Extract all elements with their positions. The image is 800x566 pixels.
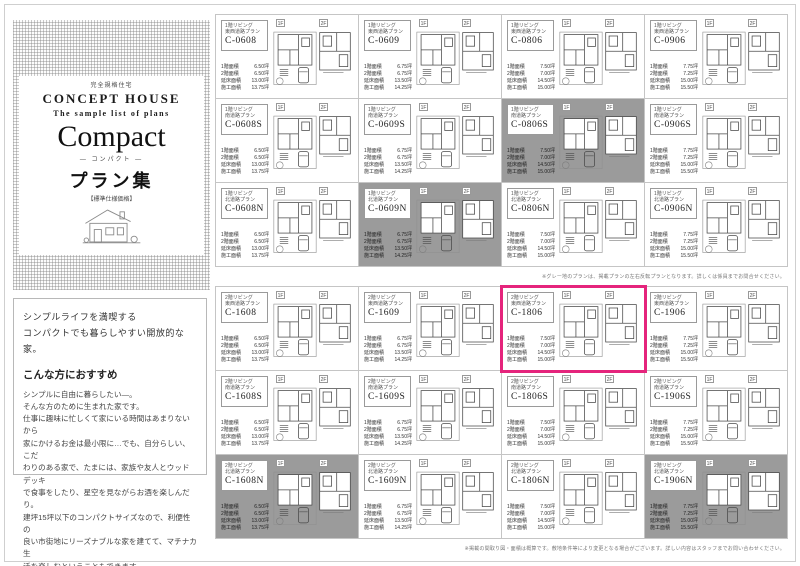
stat-value: 14.50坪 [537,162,555,169]
plan-stat-row: 施工面積13.75坪 [221,169,269,176]
plan-stat-row: 延床面積15.00坪 [650,246,698,253]
plan-label-box: 2階リビング 北道路プラン C-1906N [650,460,697,491]
plan-road-label: 東西道路プラン [225,301,264,307]
stat-label: 施工面積 [364,169,384,176]
floor-plan-2f-thumbnail [461,302,495,348]
stat-label: 2階面積 [221,239,239,246]
plan-stats: 1階面積6.75坪2階面積6.75坪延床面積13.50坪施工面積14.25坪 [364,504,412,532]
plan-road-label: 北道路プラン [225,469,264,475]
plan-stat-row: 延床面積14.50坪 [507,246,555,253]
stat-value: 13.75坪 [251,357,269,364]
plan-stat-row: 施工面積13.75坪 [221,85,269,92]
floor-1f-tag: 1F [276,103,285,111]
floor-plan-2f-thumbnail [747,470,781,516]
floor-2f-tag: 2F [748,375,757,383]
stat-label: 施工面積 [364,357,384,364]
stat-value: 15.00坪 [680,350,698,357]
stat-value: 6.50坪 [254,420,269,427]
plan-stats: 1階面積7.50坪2階面積7.00坪延床面積14.50坪施工面積15.00坪 [507,232,555,260]
plan-road-label: 南道路プラン [225,113,264,119]
stat-label: 1階面積 [221,420,239,427]
stat-value: 6.75坪 [397,343,412,350]
stat-label: 1階面積 [221,504,239,511]
stat-label: 1階面積 [364,148,382,155]
plan-card[interactable]: 2階リビング 北道路プラン C-1806N 1階面積7.50坪2階面積7.00坪… [502,455,645,539]
stat-value: 13.50坪 [394,78,412,85]
floor-plan-2f-thumbnail [461,198,495,244]
plan-code: C-1806N [511,476,550,487]
stat-value: 7.00坪 [540,239,555,246]
floor-plan-2f-thumbnail [747,114,781,160]
stat-label: 施工面積 [650,441,670,448]
floor-plan-2f-thumbnail [461,386,495,432]
floor-1f-tag: 1F [276,375,285,383]
plan-stat-row: 延床面積15.00坪 [650,162,698,169]
stat-label: 1階面積 [221,148,239,155]
stat-value: 6.75坪 [397,148,412,155]
plan-stat-row: 1階面積6.75坪 [364,420,412,427]
stat-value: 15.00坪 [537,525,555,532]
floor-1f-tag: 1F [419,291,428,299]
plan-card[interactable]: 2階リビング 南道路プラン C-1806S 1階面積7.50坪2階面積7.00坪… [502,371,645,455]
stat-label: 施工面積 [507,441,527,448]
plan-stat-row: 2階面積6.75坪 [364,239,412,246]
plan-stat-row: 1階面積7.75坪 [650,64,698,71]
stat-value: 6.75坪 [397,336,412,343]
plan-stats: 1階面積7.50坪2階面積7.00坪延床面積14.50坪施工面積15.00坪 [507,64,555,92]
floor-2f-tag: 2F [319,19,328,27]
stat-value: 6.50坪 [254,71,269,78]
plan-label-box: 1階リビング 北道路プラン C-0609N [364,188,411,219]
stat-value: 7.25坪 [683,155,698,162]
description-box: シンプルライフを満喫する コンパクトでも暮らしやすい開放的な家。 こんな方におす… [13,298,207,475]
stat-value: 7.50坪 [540,504,555,511]
plan-stat-row: 施工面積15.50坪 [650,169,698,176]
plan-road-label: 東西道路プラン [511,29,550,35]
plan-label-box: 2階リビング 東西道路プラン C-1906 [650,292,697,323]
plan-stat-row: 1階面積7.50坪 [507,64,555,71]
plan-code: C-1806S [511,392,550,403]
stat-value: 14.50坪 [537,518,555,525]
plan-stat-row: 1階面積7.50坪 [507,420,555,427]
plan-stat-row: 施工面積14.25坪 [364,357,412,364]
stat-value: 7.00坪 [540,71,555,78]
floor-1f-tag: 1F [705,291,714,299]
plan-card[interactable]: 1階リビング 北道路プラン C-0806N 1階面積7.50坪2階面積7.00坪… [502,183,645,267]
floor-plan-2f-thumbnail [461,30,495,76]
stat-value: 13.75坪 [251,525,269,532]
stat-label: 施工面積 [221,85,241,92]
stat-label: 2階面積 [507,155,525,162]
plan-stat-row: 1階面積7.75坪 [650,420,698,427]
plan-road-label: 北道路プラン [654,469,693,475]
plan-road-label: 北道路プラン [368,197,407,203]
plan-stat-row: 延床面積15.00坪 [650,78,698,85]
plan-stat-row: 2階面積7.00坪 [507,239,555,246]
plan-code: C-1609S [368,392,407,403]
stat-value: 7.75坪 [683,420,698,427]
plan-stat-row: 2階面積7.25坪 [650,511,698,518]
plan-stat-row: 延床面積14.50坪 [507,350,555,357]
floor-2f-tag: 2F [605,459,614,467]
stat-value: 13.50坪 [394,350,412,357]
stat-label: 延床面積 [221,518,241,525]
plan-label-box: 2階リビング 北道路プラン C-1806N [507,460,554,491]
plan-stat-row: 施工面積15.00坪 [507,85,555,92]
plan-stat-row: 2階面積6.75坪 [364,343,412,350]
plan-stat-row: 2階面積6.75坪 [364,155,412,162]
floor-2f-tag: 2F [319,187,328,195]
plan-card[interactable]: 1階リビング 南道路プラン C-0806S 1階面積7.50坪2階面積7.00坪… [502,99,645,183]
floor-1f-tag: 1F [562,19,571,27]
stat-value: 15.00坪 [680,434,698,441]
floor-2f-tag: 2F [605,103,614,111]
stat-value: 7.25坪 [683,71,698,78]
plan-stats: 1階面積7.75坪2階面積7.25坪延床面積15.00坪施工面積15.50坪 [650,232,698,260]
plan-stat-row: 施工面積15.00坪 [507,253,555,260]
plan-stat-row: 1階面積6.50坪 [221,232,269,239]
plan-stats: 1階面積6.50坪2階面積6.50坪延床面積13.00坪施工面積13.75坪 [221,504,269,532]
floor-plan-1f-thumbnail [416,113,460,175]
stat-value: 14.25坪 [394,357,412,364]
plan-stat-row: 施工面積15.50坪 [650,85,698,92]
plan-label-box: 1階リビング 北道路プラン C-0806N [507,188,554,219]
plan-stat-row: 延床面積14.50坪 [507,162,555,169]
stat-value: 15.50坪 [680,85,698,92]
stat-value: 15.00坪 [680,518,698,525]
plan-label-box: 1階リビング 東西道路プラン C-0806 [507,20,554,51]
plan-stat-row: 2階面積7.25坪 [650,71,698,78]
plan-stat-row: 2階面積7.00坪 [507,155,555,162]
stat-value: 7.75坪 [683,64,698,71]
stat-label: 延床面積 [650,434,670,441]
plan-road-label: 南道路プラン [654,385,693,391]
stat-value: 13.00坪 [251,518,269,525]
plan-card[interactable]: 2階リビング 北道路プラン C-1609N 1階面積6.75坪2階面積6.75坪… [359,455,502,539]
plan-stat-row: 1階面積6.75坪 [364,336,412,343]
floor-2f-tag: 2F [748,19,757,27]
plan-stat-row: 2階面積7.25坪 [650,427,698,434]
plan-card[interactable]: 1階リビング 南道路プラン C-0608S 1階面積6.50坪2階面積6.50坪… [216,99,359,183]
plan-stats: 1階面積6.75坪2階面積6.75坪延床面積13.50坪施工面積14.25坪 [364,232,412,260]
stat-label: 延床面積 [221,434,241,441]
plan-grid-top: 1階リビング 東西道路プラン C-0608 1階面積6.50坪2階面積6.50坪… [215,14,788,267]
floor-plan-2f-thumbnail [747,302,781,348]
plan-card[interactable]: 2階リビング 東西道路プラン C-1906 1階面積7.75坪2階面積7.25坪… [645,287,788,371]
plan-stat-row: 延床面積13.00坪 [221,434,269,441]
plan-card[interactable]: 2階リビング 南道路プラン C-1608S 1階面積6.50坪2階面積6.50坪… [216,371,359,455]
plan-label-box: 2階リビング 南道路プラン C-1806S [507,376,554,407]
floor-2f-tag: 2F [319,103,328,111]
stat-label: 2階面積 [364,155,382,162]
floor-plan-2f-thumbnail [604,198,638,244]
stat-label: 1階面積 [507,420,525,427]
plan-code: C-1906 [654,308,693,319]
stat-value: 6.75坪 [397,64,412,71]
stat-value: 14.25坪 [394,169,412,176]
stat-label: 1階面積 [364,232,382,239]
plan-stat-row: 施工面積15.50坪 [650,357,698,364]
stat-value: 14.25坪 [394,85,412,92]
stat-value: 6.50坪 [254,64,269,71]
floor-1f-tag: 1F [705,103,714,111]
plan-stat-row: 1階面積6.75坪 [364,504,412,511]
plan-code: C-1609N [368,476,407,487]
stat-label: 2階面積 [364,427,382,434]
floor-2f-tag: 2F [462,459,471,467]
plan-stat-row: 延床面積13.50坪 [364,78,412,85]
stat-value: 7.00坪 [540,511,555,518]
floor-2f-tag: 2F [462,19,471,27]
plan-stat-row: 延床面積15.00坪 [650,518,698,525]
brand-title: CONCEPT HOUSE [19,91,204,107]
plan-stat-row: 施工面積14.25坪 [364,169,412,176]
floor-plan-1f-thumbnail [273,301,317,363]
plan-road-label: 東西道路プラン [511,301,550,307]
plan-road-label: 南道路プラン [225,385,264,391]
plan-stats: 1階面積6.75坪2階面積6.75坪延床面積13.50坪施工面積14.25坪 [364,336,412,364]
plan-card[interactable]: 1階リビング 北道路プラン C-0906N 1階面積7.75坪2階面積7.25坪… [645,183,788,267]
stat-value: 6.75坪 [397,420,412,427]
plan-stat-row: 2階面積7.25坪 [650,343,698,350]
plan-stat-row: 1階面積7.50坪 [507,504,555,511]
plan-road-label: 南道路プラン [368,385,407,391]
plan-label-box: 1階リビング 東西道路プラン C-0609 [364,20,411,51]
plan-stat-row: 延床面積13.50坪 [364,162,412,169]
stat-value: 13.50坪 [394,434,412,441]
plan-label-box: 1階リビング 南道路プラン C-0609S [364,104,411,135]
stat-value: 14.25坪 [394,525,412,532]
stat-label: 1階面積 [507,232,525,239]
stat-label: 2階面積 [507,427,525,434]
plan-card[interactable]: 1階リビング 南道路プラン C-0906S 1階面積7.75坪2階面積7.25坪… [645,99,788,183]
stat-label: 1階面積 [507,504,525,511]
plan-card[interactable]: 2階リビング 東西道路プラン C-1609 1階面積6.75坪2階面積6.75坪… [359,287,502,371]
plan-label-box: 1階リビング 東西道路プラン C-0608 [221,20,268,51]
stat-value: 13.75坪 [251,85,269,92]
plan-card[interactable]: 1階リビング 東西道路プラン C-0609 1階面積6.75坪2階面積6.75坪… [359,15,502,99]
plan-card[interactable]: 2階リビング 東西道路プラン C-1608 1階面積6.50坪2階面積6.50坪… [216,287,359,371]
plan-label-box: 1階リビング 北道路プラン C-0608N [221,188,268,219]
brand-subtitle: The sample list of plans [19,109,204,118]
floor-plan-2f-thumbnail [604,386,638,432]
stat-value: 13.00坪 [251,434,269,441]
plan-label-box: 2階リビング 東西道路プラン C-1609 [364,292,411,323]
stat-value: 6.50坪 [254,336,269,343]
floor-plan-2f-thumbnail [747,30,781,76]
stat-label: 2階面積 [221,343,239,350]
stat-label: 2階面積 [650,239,668,246]
plan-road-label: 北道路プラン [225,197,264,203]
plan-stat-row: 1階面積7.50坪 [507,232,555,239]
stat-label: 施工面積 [650,253,670,260]
plan-stat-row: 2階面積6.75坪 [364,511,412,518]
plan-stat-row: 1階面積7.75坪 [650,232,698,239]
stat-value: 14.25坪 [394,441,412,448]
title-block: 完全規格住宅 CONCEPT HOUSE The sample list of … [13,20,210,290]
floor-plan-1f-thumbnail [702,469,746,531]
floor-1f-tag: 1F [419,103,428,111]
stat-label: 1階面積 [507,148,525,155]
stat-value: 7.25坪 [683,343,698,350]
plan-stat-row: 1階面積7.50坪 [507,148,555,155]
plan-stat-row: 延床面積13.00坪 [221,246,269,253]
plan-stat-row: 2階面積7.25坪 [650,239,698,246]
stat-label: 1階面積 [650,232,668,239]
stat-value: 15.00坪 [537,169,555,176]
recommend-heading: こんな方におすすめ [23,367,197,382]
floor-2f-tag: 2F [748,187,757,195]
stat-value: 15.50坪 [680,441,698,448]
plan-stat-row: 1階面積6.50坪 [221,504,269,511]
plan-code: C-0608N [225,204,264,215]
floor-2f-tag: 2F [462,375,471,383]
plan-label-box: 2階リビング 北道路プラン C-1608N [221,460,268,491]
plan-stat-row: 施工面積15.00坪 [507,169,555,176]
floor-2f-tag: 2F [748,459,757,467]
plan-card[interactable]: 1階リビング 北道路プラン C-0609N 1階面積6.75坪2階面積6.75坪… [359,183,502,267]
plan-stat-row: 延床面積13.50坪 [364,518,412,525]
plan-card[interactable]: 1階リビング 東西道路プラン C-0806 1階面積7.50坪2階面積7.00坪… [502,15,645,99]
stat-value: 13.00坪 [251,246,269,253]
plan-card[interactable]: 1階リビング 南道路プラン C-0609S 1階面積6.75坪2階面積6.75坪… [359,99,502,183]
stat-label: 2階面積 [221,155,239,162]
plan-stat-row: 2階面積6.50坪 [221,239,269,246]
plan-stat-row: 1階面積7.75坪 [650,504,698,511]
plan-code: C-1609 [368,308,407,319]
house-illustration-icon [19,206,204,251]
floor-plan-2f-thumbnail [461,470,495,516]
stat-value: 15.00坪 [680,78,698,85]
floor-plan-2f-thumbnail [604,30,638,76]
floor-plan-1f-thumbnail [559,301,603,363]
plan-road-label: 南道路プラン [368,113,407,119]
stat-value: 6.75坪 [397,427,412,434]
plan-stat-row: 2階面積7.00坪 [507,71,555,78]
stat-value: 13.50坪 [394,162,412,169]
stat-value: 14.50坪 [537,246,555,253]
floor-2f-tag: 2F [319,459,328,467]
plan-road-label: 南道路プラン [511,113,550,119]
plan-card[interactable]: 1階リビング 北道路プラン C-0608N 1階面積6.50坪2階面積6.50坪… [216,183,359,267]
plan-stats: 1階面積7.50坪2階面積7.00坪延床面積14.50坪施工面積15.00坪 [507,504,555,532]
plan-stat-row: 施工面積15.50坪 [650,525,698,532]
plan-stat-row: 延床面積14.50坪 [507,518,555,525]
stat-label: 延床面積 [650,518,670,525]
plan-code: C-1906S [654,392,693,403]
stat-value: 7.50坪 [540,64,555,71]
stat-value: 7.50坪 [540,420,555,427]
plan-code: C-1806 [511,308,550,319]
floor-plan-1f-thumbnail [702,385,746,447]
plan-grid: 1階リビング 東西道路プラン C-0608 1階面積6.50坪2階面積6.50坪… [215,14,788,558]
plan-stats: 1階面積6.75坪2階面積6.75坪延床面積13.50坪施工面積14.25坪 [364,64,412,92]
stat-label: 1階面積 [507,336,525,343]
stat-label: 施工面積 [221,525,241,532]
plan-road-label: 北道路プラン [368,469,407,475]
plan-stat-row: 延床面積15.00坪 [650,434,698,441]
plan-card[interactable]: 1階リビング 東西道路プラン C-0608 1階面積6.50坪2階面積6.50坪… [216,15,359,99]
floor-1f-tag: 1F [419,459,428,467]
stat-label: 延床面積 [221,246,241,253]
plan-card[interactable]: 2階リビング 東西道路プラン C-1806 1階面積7.50坪2階面積7.00坪… [502,287,645,371]
plan-label-box: 1階リビング 北道路プラン C-0906N [650,188,697,219]
plan-stat-row: 2階面積7.00坪 [507,427,555,434]
stat-label: 延床面積 [221,162,241,169]
stat-label: 延床面積 [650,162,670,169]
stat-label: 施工面積 [507,253,527,260]
plan-road-label: 東西道路プラン [368,29,407,35]
plan-card[interactable]: 2階リビング 北道路プラン C-1608N 1階面積6.50坪2階面積6.50坪… [216,455,359,539]
floor-1f-tag: 1F [705,459,714,467]
plan-label-box: 2階リビング 南道路プラン C-1609S [364,376,411,407]
plan-stat-row: 2階面積6.50坪 [221,155,269,162]
plan-card[interactable]: 1階リビング 東西道路プラン C-0906 1階面積7.75坪2階面積7.25坪… [645,15,788,99]
stat-label: 延床面積 [221,350,241,357]
floor-plan-1f-thumbnail [416,385,460,447]
plan-code: C-0806 [511,36,550,47]
floor-plan-1f-thumbnail [559,113,603,175]
floor-2f-tag: 2F [462,291,471,299]
plan-stat-row: 施工面積14.25坪 [364,525,412,532]
plan-road-label: 南道路プラン [511,385,550,391]
stat-value: 13.00坪 [251,350,269,357]
plan-stat-row: 延床面積13.00坪 [221,78,269,85]
stat-label: 延床面積 [650,78,670,85]
stat-label: 2階面積 [364,511,382,518]
stat-value: 13.00坪 [251,162,269,169]
stat-value: 7.50坪 [540,232,555,239]
stat-label: 2階面積 [221,511,239,518]
stat-value: 7.50坪 [540,148,555,155]
stat-label: 1階面積 [364,504,382,511]
stat-label: 延床面積 [364,246,384,253]
stat-value: 14.25坪 [394,253,412,260]
plan-stat-row: 1階面積6.50坪 [221,420,269,427]
plan-card[interactable]: 2階リビング 南道路プラン C-1906S 1階面積7.75坪2階面積7.25坪… [645,371,788,455]
stat-label: 施工面積 [507,85,527,92]
plan-stat-row: 延床面積13.50坪 [364,434,412,441]
stat-value: 6.75坪 [397,232,412,239]
plan-stat-row: 2階面積6.75坪 [364,71,412,78]
stat-label: 延床面積 [507,246,527,253]
plan-card[interactable]: 2階リビング 南道路プラン C-1609S 1階面積6.75坪2階面積6.75坪… [359,371,502,455]
floor-plan-2f-thumbnail [318,302,352,348]
plan-code: C-0608 [225,36,264,47]
floor-plan-1f-thumbnail [273,197,317,259]
stat-value: 6.75坪 [397,504,412,511]
plan-stat-row: 1階面積6.75坪 [364,64,412,71]
stat-label: 2階面積 [650,511,668,518]
stat-label: 2階面積 [507,511,525,518]
plan-stat-row: 施工面積13.75坪 [221,441,269,448]
floor-1f-tag: 1F [562,291,571,299]
floor-plan-2f-thumbnail [461,114,495,160]
stat-label: 延床面積 [507,78,527,85]
plan-card[interactable]: 2階リビング 北道路プラン C-1906N 1階面積7.75坪2階面積7.25坪… [645,455,788,539]
floor-2f-tag: 2F [462,103,471,111]
plan-code: C-1608N [225,476,264,487]
stat-label: 2階面積 [364,343,382,350]
stat-label: 1階面積 [507,64,525,71]
plan-stat-row: 施工面積14.25坪 [364,85,412,92]
floor-plan-1f-thumbnail [416,197,460,259]
tagline: 完全規格住宅 [19,80,204,89]
plan-label-box: 1階リビング 南道路プラン C-0608S [221,104,268,135]
stat-value: 14.50坪 [537,78,555,85]
stat-label: 1階面積 [650,504,668,511]
floor-1f-tag: 1F [705,375,714,383]
